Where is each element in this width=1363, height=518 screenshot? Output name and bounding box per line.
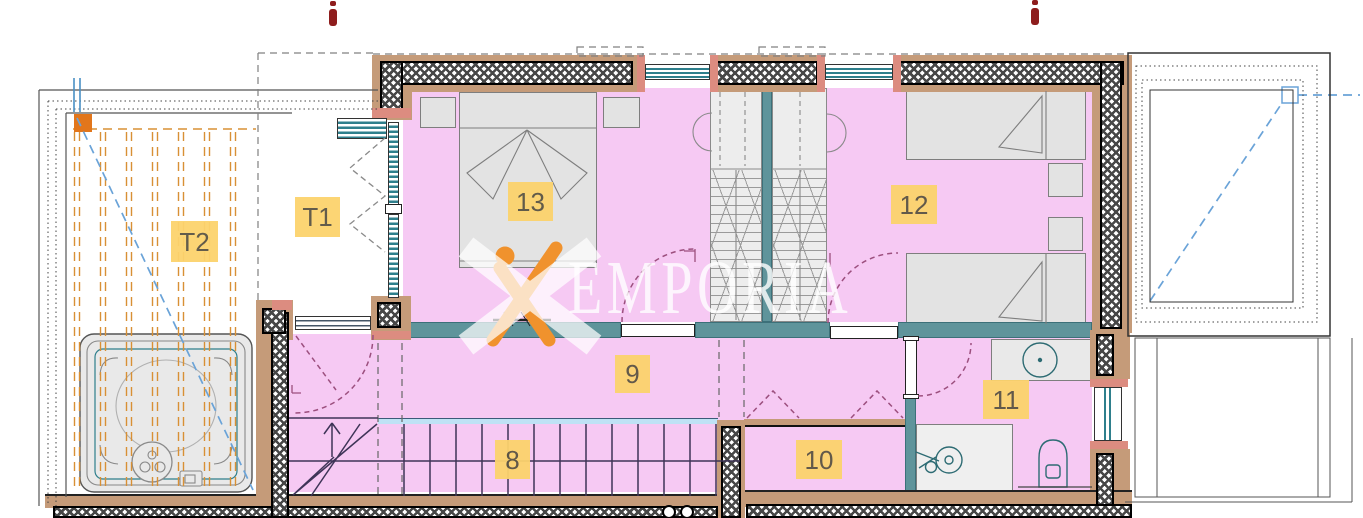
section-marker-bar bbox=[1031, 8, 1039, 25]
folding-shutter-symbol bbox=[350, 138, 385, 252]
room-label-10: 10 bbox=[796, 440, 842, 479]
floor-plan-canvas: EMPORIA T2 T1 13 12 9 8 10 11 bbox=[0, 0, 1363, 518]
room-label-12: 12 bbox=[891, 185, 937, 224]
wall-pivot-circles bbox=[663, 506, 693, 518]
watermark-text: EMPORIA bbox=[568, 250, 852, 326]
stair-direction-arrow bbox=[324, 423, 340, 457]
corner-marker bbox=[74, 114, 92, 132]
room-label-8: 8 bbox=[495, 440, 530, 479]
toilet bbox=[1039, 440, 1067, 487]
room-label-t1: T1 bbox=[295, 197, 340, 237]
right-roof-terrace bbox=[1125, 53, 1352, 502]
shower-head bbox=[936, 447, 962, 473]
section-marker-bar bbox=[329, 9, 337, 26]
folding-door-symbol bbox=[747, 391, 903, 418]
room-label-13: 13 bbox=[508, 182, 553, 221]
section-marker-dot bbox=[330, 1, 336, 6]
room-label-t2: T2 bbox=[171, 221, 218, 262]
room-label-9: 9 bbox=[615, 355, 650, 393]
gutter-mark bbox=[74, 78, 80, 112]
room-label-11: 11 bbox=[983, 380, 1029, 419]
section-marker-dot bbox=[1032, 0, 1038, 5]
